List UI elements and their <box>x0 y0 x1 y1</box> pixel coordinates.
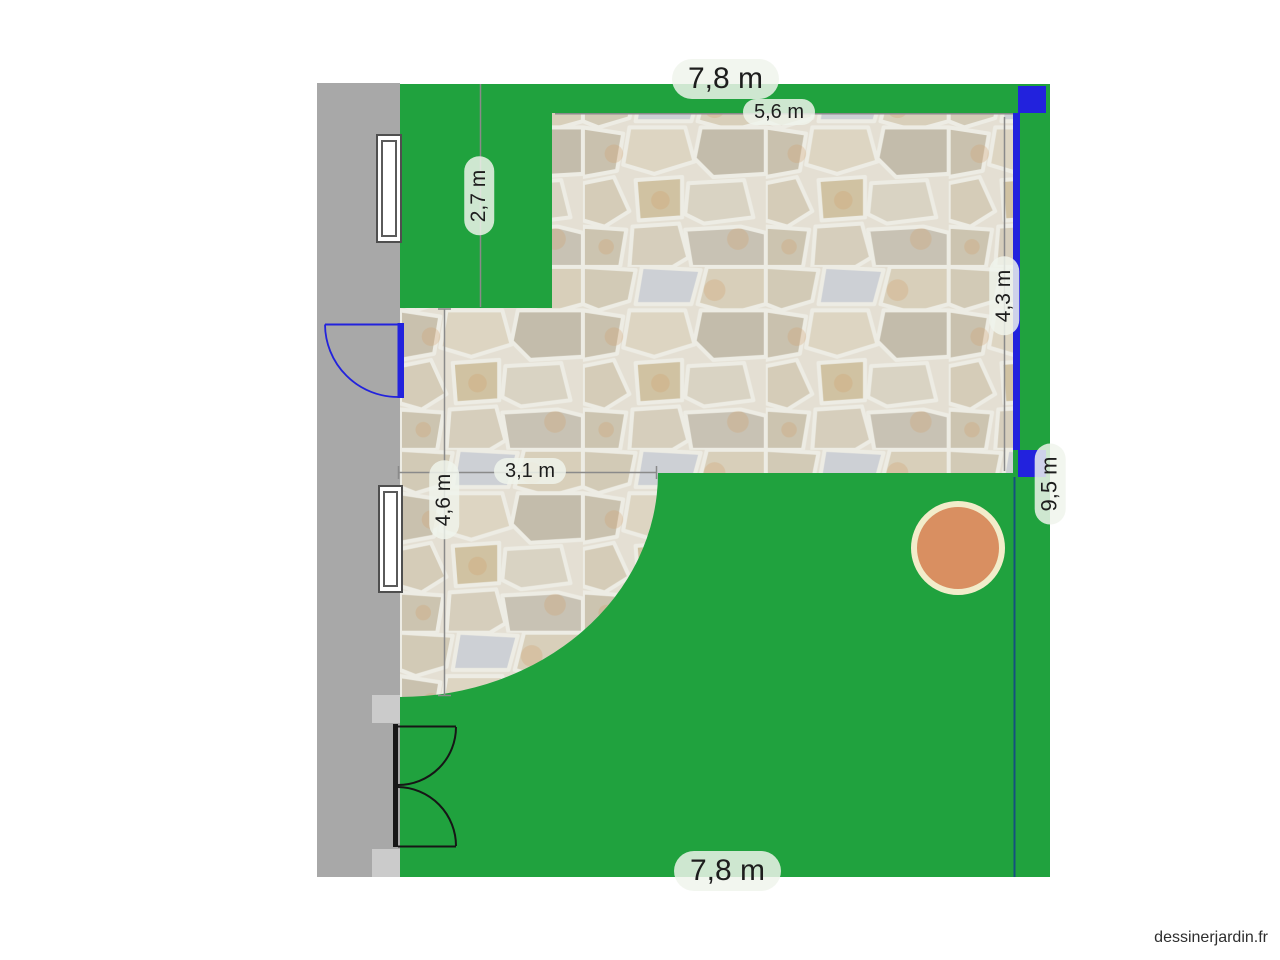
dimension-label-garden-top-width: 7,8 m <box>672 59 779 99</box>
gate-post-top[interactable] <box>1018 86 1046 113</box>
garden-plan-canvas: 7,8 m 5,6 m 2,7 m 4,6 m 3,1 m 4,3 m 9,5 … <box>0 0 1280 960</box>
dimension-label-lawn-corner-height: 2,7 m <box>464 157 494 236</box>
window-middle-sash <box>383 491 398 587</box>
dimension-label-terrace-bottom-width: 3,1 m <box>494 458 566 484</box>
dimension-label-terrace-top-width: 5,6 m <box>743 99 815 125</box>
dimension-label-terrace-left-height: 4,6 m <box>429 461 459 540</box>
watermark: dessinerjardin.fr <box>1154 929 1268 947</box>
dimension-label-garden-right-height: 9,5 m <box>1035 443 1066 524</box>
window-top-sash <box>381 140 397 237</box>
dimension-label-garden-bottom-width: 7,8 m <box>674 851 781 891</box>
window-middle[interactable] <box>378 485 403 593</box>
single-door[interactable] <box>325 323 404 398</box>
french-door[interactable] <box>396 724 457 847</box>
window-top[interactable] <box>376 134 402 243</box>
tree[interactable] <box>914 504 1002 592</box>
dimension-label-terrace-right-height: 4,3 m <box>989 257 1019 336</box>
plan-linework <box>0 0 1280 960</box>
